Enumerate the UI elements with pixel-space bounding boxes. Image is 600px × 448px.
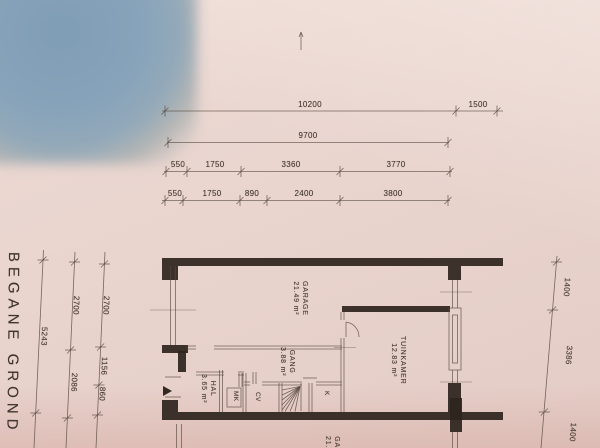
dim-label: 1400 xyxy=(562,277,572,297)
closet-label-mk: MK xyxy=(232,391,239,401)
room-label-tuinkamer: TUINKAMER 12.83 m² xyxy=(389,336,407,384)
dim-label: 9700 xyxy=(299,131,318,140)
dim-label: 1400 xyxy=(568,422,578,442)
room-area: 3.88 m² xyxy=(278,347,287,376)
room-area: 21. xyxy=(323,436,332,448)
closet-label-k: K xyxy=(323,391,330,396)
dim-label: 5243 xyxy=(39,327,49,346)
dim-label: 890 xyxy=(245,189,259,198)
room-name: GA xyxy=(332,436,341,448)
room-area: 21.49 m² xyxy=(291,281,300,316)
floor-plan-drawing xyxy=(0,0,600,448)
thin-walls xyxy=(150,266,472,448)
dim-label: 3800 xyxy=(384,189,403,198)
room-area: 3.65 m² xyxy=(199,374,208,403)
dim-label: 1500 xyxy=(469,100,488,109)
room-label-hal: HAL 3.65 m² xyxy=(199,374,217,403)
dim-label: 10200 xyxy=(298,100,322,109)
dim-label: 1750 xyxy=(203,189,222,198)
dim-label: 3770 xyxy=(387,160,406,169)
window-icon xyxy=(449,308,461,370)
entrance-arrow-icon xyxy=(163,377,181,397)
room-area: 12.83 m² xyxy=(389,336,398,384)
walls xyxy=(162,258,503,432)
dim-label: 2700 xyxy=(71,296,81,315)
room-label-gang: GANG 3.88 m² xyxy=(278,347,296,376)
room-name: TUINKAMER xyxy=(398,336,407,384)
room-name: HAL xyxy=(208,374,217,403)
door-swing-icon xyxy=(346,322,359,337)
dim-label: 860 xyxy=(98,387,107,402)
room-name: GARAGE xyxy=(300,281,309,316)
dim-label: 2400 xyxy=(295,189,314,198)
dim-label: 2700 xyxy=(101,296,111,315)
closet-label-cv: CV xyxy=(254,392,261,402)
dim-label: 1156 xyxy=(99,357,109,376)
dim-label: 3386 xyxy=(564,345,574,365)
plan-title: BEGANE GROND xyxy=(3,252,22,435)
dim-label: 2086 xyxy=(69,373,79,392)
north-mark-icon xyxy=(299,32,303,50)
dim-label: 550 xyxy=(171,160,185,169)
left-dimension-lines xyxy=(30,250,110,448)
dim-label: 1750 xyxy=(206,160,225,169)
room-label-partial: GA 21. xyxy=(323,436,341,448)
photo-of-floor-plan: { "plan": { "title": "BEGANE GROND" }, "… xyxy=(0,0,600,448)
dim-label: 550 xyxy=(168,189,182,198)
room-name: GANG xyxy=(287,347,296,376)
right-dimension-line xyxy=(539,256,562,448)
dim-label: 3360 xyxy=(282,160,301,169)
room-label-garage: GARAGE 21.49 m² xyxy=(291,281,309,316)
